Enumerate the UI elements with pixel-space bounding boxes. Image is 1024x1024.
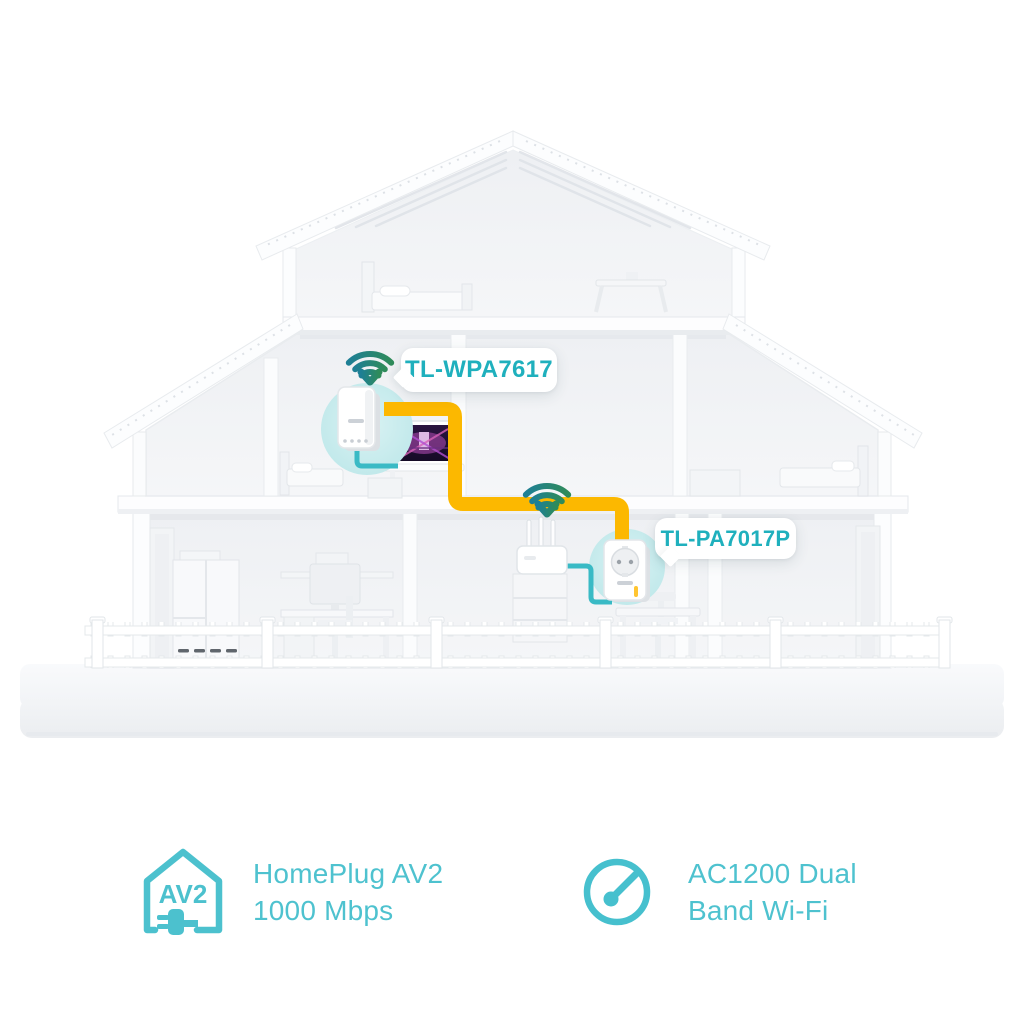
attic bbox=[283, 150, 745, 335]
device-label-text: TL-PA7017P bbox=[661, 526, 791, 552]
base-platform bbox=[20, 664, 1004, 738]
power-socket bbox=[612, 549, 639, 576]
tp-link-logo bbox=[617, 581, 633, 585]
device-label-powerline-adapter: TL-PA7017P bbox=[655, 518, 796, 559]
device-label-wifi-extender: TL-WPA7617 bbox=[401, 348, 557, 392]
feature-line: AC1200 Dual bbox=[688, 855, 857, 892]
wifi-extender-device bbox=[338, 387, 380, 451]
tp-link-product-diagram: TL-WPA7617 TL-PA7017P AV2 HomePlug AV2 1… bbox=[0, 0, 1024, 1024]
wall-divider bbox=[264, 358, 278, 496]
right-wall bbox=[878, 432, 891, 496]
terrace-fence bbox=[85, 617, 952, 668]
homeplug-av2-house-plug-icon: AV2 bbox=[141, 845, 225, 939]
wall-divider bbox=[673, 332, 687, 496]
tp-link-logo bbox=[348, 419, 364, 423]
feature-ac1200-wifi: AC1200 Dual Band Wi-Fi bbox=[580, 847, 857, 937]
feature-text: AC1200 Dual Band Wi-Fi bbox=[688, 855, 857, 929]
feature-homeplug-av2: AV2 HomePlug AV2 1000 Mbps bbox=[141, 845, 443, 939]
feature-text: HomePlug AV2 1000 Mbps bbox=[253, 855, 443, 929]
feature-line: HomePlug AV2 bbox=[253, 855, 443, 892]
feature-line: 1000 Mbps bbox=[253, 892, 443, 929]
fence-top-rail bbox=[85, 626, 948, 635]
attic-floor-slab bbox=[283, 317, 745, 332]
speedometer-icon bbox=[580, 847, 654, 937]
av2-badge-text: AV2 bbox=[159, 879, 208, 909]
powerline-adapter-device bbox=[604, 540, 650, 602]
left-wall bbox=[133, 432, 146, 496]
plug-icon bbox=[157, 909, 198, 935]
feature-line: Band Wi-Fi bbox=[688, 892, 857, 929]
device-label-text: TL-WPA7617 bbox=[405, 356, 553, 384]
fence-bottom-rail bbox=[85, 658, 948, 667]
radiator bbox=[368, 478, 402, 498]
led-indicator bbox=[634, 586, 638, 597]
